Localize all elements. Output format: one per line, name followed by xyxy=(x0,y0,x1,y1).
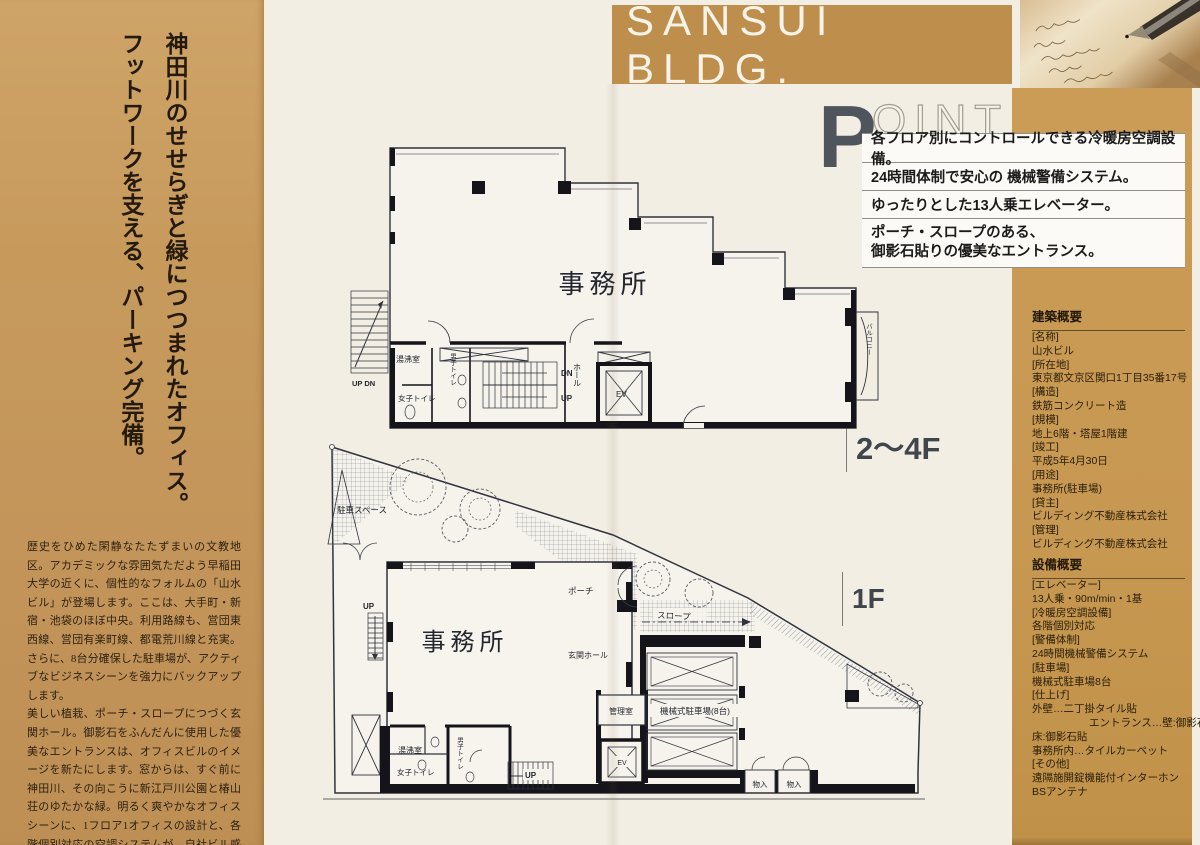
overview-line: 遠隔施開錠機能付インターホン xyxy=(1032,772,1192,786)
overview-line: エントランス…壁:御影石貼 xyxy=(1032,717,1192,731)
overview-line: [名称] xyxy=(1032,331,1192,345)
intro-paragraph: 歴史をひめた閑静なたたずまいの文教地区。アカデミックな雰囲気ただよう早稲田大学の… xyxy=(27,538,241,845)
building-title: SANSUI BLDG. xyxy=(626,0,1012,93)
building-overview-list: [名称] 山水ビル [所在地] 東京都文京区関口1丁目35番17号 [構造] 鉄… xyxy=(1032,331,1192,552)
point-item: ポーチ・スロープのある、 御影石貼りの優美なエントランス。 xyxy=(862,219,1185,268)
overview-line: 13人乗・90m/min・1基 xyxy=(1032,593,1192,607)
point-item: 各フロア別にコントロールできる冷暖房空調設備。 xyxy=(862,134,1185,163)
storage2-label: 物入 xyxy=(787,779,802,789)
overview-line: 機械式駐車場8台 xyxy=(1032,676,1192,690)
left-sidebar-panel: 神田川のせせらぎと緑につつまれたオフィス。 フットワークを支える、パーキング完備… xyxy=(0,0,264,845)
entrance-hall-label: 玄関ホール xyxy=(568,650,608,660)
balcony-label: バルコニー xyxy=(865,323,873,356)
kitchenette-label: 湯沸室 xyxy=(396,354,420,364)
ext-stair-label: UP DN xyxy=(352,379,375,388)
overview-line: 24時間機械警備システム xyxy=(1032,648,1192,662)
equipment-overview-title: 設備概要 xyxy=(1032,554,1185,579)
overview-line: 事務所内…タイルカーペット xyxy=(1032,745,1192,759)
office-label-2-4f: 事務所 xyxy=(558,269,651,299)
overview-line: BSアンテナ xyxy=(1032,786,1192,800)
point-item: ゆったりとした13人乗エレベーター。 xyxy=(862,191,1185,219)
vertical-headline: 神田川のせせらぎと緑につつまれたオフィス。 フットワークを支える、パーキング完備… xyxy=(100,32,196,542)
storage1-label: 物入 xyxy=(753,779,768,789)
overview-line: 平成5年4月30日 xyxy=(1032,455,1192,469)
stair-up-label: UP xyxy=(561,394,573,403)
womens-toilet-1f-label: 女子トイレ xyxy=(397,767,435,777)
overview-line: 地上6階・塔屋1階建 xyxy=(1032,428,1192,442)
overview-line: [規模] xyxy=(1032,414,1192,428)
overview-line: ビルディング不動産株式会社 xyxy=(1032,538,1192,552)
equipment-overview-list: [エレベーター] 13人乗・90m/min・1基 [冷暖房空調設備] 各階個別対… xyxy=(1032,579,1192,800)
mechanical-parking-label: 機械式駐車場(8台) xyxy=(660,706,730,716)
point-item: 24時間体制で安心の 機械警備システム。 xyxy=(862,163,1185,191)
point-list: 各フロア別にコントロールできる冷暖房空調設備。 24時間体制で安心の 機械警備シ… xyxy=(862,133,1185,268)
overview-line: [構造] xyxy=(1032,386,1192,400)
page-fold-crease xyxy=(606,84,620,845)
headline-line-2: フットワークを支える、パーキング完備。 xyxy=(108,32,152,542)
stair-dn-label: DN xyxy=(561,369,573,378)
overview-line: 各階個別対応 xyxy=(1032,620,1192,634)
slope-label: スロープ xyxy=(657,610,691,622)
womens-toilet-label: 女子トイレ xyxy=(398,393,436,403)
overview-line: 床:御影石貼 xyxy=(1032,731,1192,745)
overview-line: [仕上げ] xyxy=(1032,689,1192,703)
overview-line: [冷暖房空調設備] xyxy=(1032,607,1192,621)
parking-space-label: 駐車スペース xyxy=(337,505,387,515)
overview-line: [その他] xyxy=(1032,758,1192,772)
up-left-label: UP xyxy=(363,602,375,611)
external-stairs xyxy=(351,291,388,373)
overview-line: [エレベーター] xyxy=(1032,579,1192,593)
office-label-1f: 事務所 xyxy=(422,629,509,656)
overview-line: [貸主] xyxy=(1032,497,1192,511)
entrance-gap xyxy=(684,423,704,428)
overview-line: 東京都文京区関口1丁目35番17号 xyxy=(1032,372,1192,386)
overview-line: 外壁…二丁掛タイル貼 xyxy=(1032,703,1192,717)
overview-line: 山水ビル xyxy=(1032,345,1192,359)
overview-line: [駐車場] xyxy=(1032,662,1192,676)
building-overview-title: 建築概要 xyxy=(1032,306,1185,331)
floor-plan-1f: 事務所 UP 駐車スペース xyxy=(315,432,930,817)
hall-label: ホール xyxy=(573,363,582,387)
pen-writing-photo xyxy=(1020,0,1200,88)
overview-line: [所在地] xyxy=(1032,359,1192,373)
porch-label: ポーチ xyxy=(568,586,594,596)
overview-line: 鉄筋コンクリート造 xyxy=(1032,400,1192,414)
overview-line: ビルディング不動産株式会社 xyxy=(1032,510,1192,524)
overview-line: [用途] xyxy=(1032,469,1192,483)
overview-line: [警備体制] xyxy=(1032,634,1192,648)
brochure-spread: 神田川のせせらぎと緑につつまれたオフィス。 フットワークを支える、パーキング完備… xyxy=(0,0,1200,845)
title-banner: SANSUI BLDG. xyxy=(612,5,1012,84)
overview-line: 事務所(駐車場) xyxy=(1032,483,1192,497)
up-stair-label: UP xyxy=(525,771,537,780)
headline-line-1: 神田川のせせらぎと緑につつまれたオフィス。 xyxy=(152,32,196,542)
overview-line: [管理] xyxy=(1032,524,1192,538)
pen-photo-art xyxy=(1020,0,1200,88)
floor-plan-2-4f: EV DN UP UP DN バルコニー ホール 湯沸室 男子トイレ 女子トイレ… xyxy=(340,135,900,435)
kitchenette-1f-label: 湯沸室 xyxy=(398,745,422,755)
overview-line: [竣工] xyxy=(1032,441,1192,455)
